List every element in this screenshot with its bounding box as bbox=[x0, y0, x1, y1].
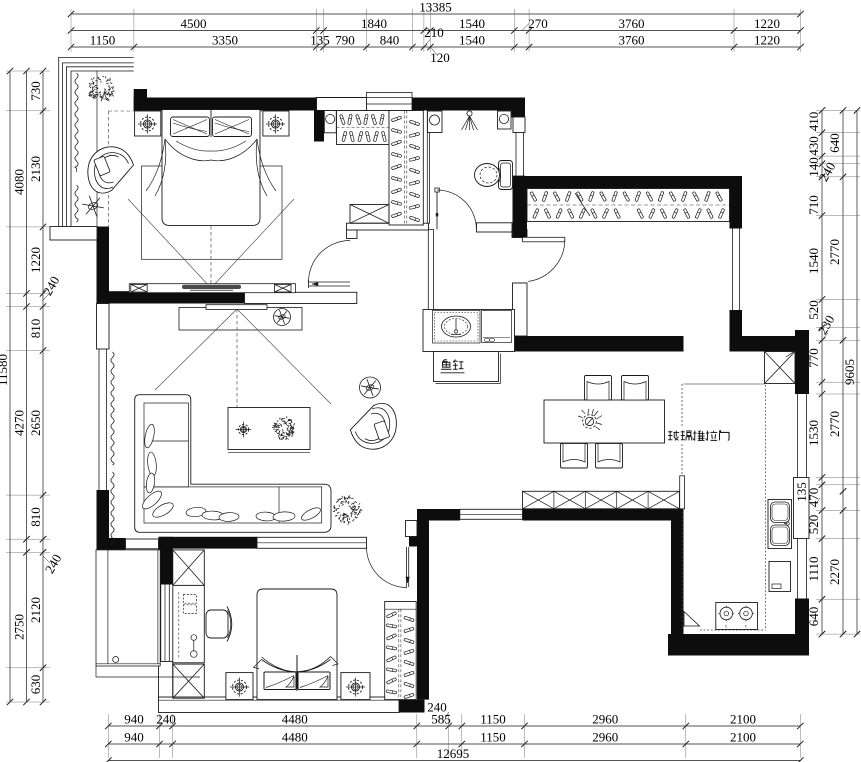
svg-text:2770: 2770 bbox=[827, 411, 842, 437]
svg-text:210: 210 bbox=[424, 25, 444, 40]
svg-text:2270: 2270 bbox=[827, 559, 842, 585]
svg-text:135: 135 bbox=[794, 482, 809, 502]
svg-text:1150: 1150 bbox=[480, 730, 506, 745]
svg-text:12695: 12695 bbox=[437, 746, 470, 761]
svg-text:840: 840 bbox=[380, 33, 400, 48]
svg-text:810: 810 bbox=[28, 319, 43, 339]
svg-text:640: 640 bbox=[806, 607, 821, 627]
svg-text:240: 240 bbox=[427, 700, 447, 715]
svg-text:1530: 1530 bbox=[806, 420, 821, 446]
svg-text:1220: 1220 bbox=[28, 247, 43, 273]
svg-text:520: 520 bbox=[806, 300, 821, 320]
svg-text:13385: 13385 bbox=[419, 0, 452, 15]
svg-text:4080: 4080 bbox=[12, 169, 27, 195]
svg-text:1150: 1150 bbox=[480, 712, 506, 727]
svg-text:710: 710 bbox=[806, 195, 821, 215]
svg-text:770: 770 bbox=[806, 348, 821, 368]
svg-text:2120: 2120 bbox=[28, 597, 43, 623]
svg-text:940: 940 bbox=[124, 712, 144, 727]
svg-text:4500: 4500 bbox=[181, 16, 207, 31]
svg-text:2770: 2770 bbox=[827, 239, 842, 265]
svg-text:640: 640 bbox=[827, 133, 842, 153]
svg-text:1840: 1840 bbox=[361, 16, 387, 31]
svg-text:520: 520 bbox=[806, 515, 821, 535]
svg-text:410: 410 bbox=[806, 112, 821, 132]
svg-text:1540: 1540 bbox=[459, 16, 485, 31]
svg-text:940: 940 bbox=[124, 730, 144, 745]
svg-text:1150: 1150 bbox=[90, 33, 116, 48]
svg-text:135: 135 bbox=[310, 33, 330, 48]
svg-text:430: 430 bbox=[806, 136, 821, 156]
svg-text:2100: 2100 bbox=[730, 730, 756, 745]
svg-text:1540: 1540 bbox=[806, 248, 821, 274]
svg-text:4270: 4270 bbox=[12, 410, 27, 436]
svg-text:1110: 1110 bbox=[806, 556, 821, 581]
svg-text:2750: 2750 bbox=[12, 614, 27, 640]
svg-text:3350: 3350 bbox=[212, 33, 238, 48]
svg-text:2100: 2100 bbox=[730, 712, 756, 727]
svg-text:270: 270 bbox=[528, 16, 548, 31]
svg-text:1220: 1220 bbox=[754, 16, 780, 31]
svg-text:120: 120 bbox=[430, 50, 450, 65]
svg-text:2960: 2960 bbox=[592, 730, 618, 745]
svg-text:630: 630 bbox=[28, 675, 43, 695]
svg-text:810: 810 bbox=[28, 507, 43, 527]
svg-text:1540: 1540 bbox=[459, 33, 485, 48]
svg-text:3760: 3760 bbox=[619, 33, 645, 48]
svg-text:4480: 4480 bbox=[282, 712, 308, 727]
svg-text:240: 240 bbox=[156, 712, 176, 727]
svg-text:1220: 1220 bbox=[754, 33, 780, 48]
svg-text:2960: 2960 bbox=[592, 712, 618, 727]
svg-text:9605: 9605 bbox=[842, 359, 857, 385]
svg-text:790: 790 bbox=[335, 33, 355, 48]
svg-text:2130: 2130 bbox=[28, 156, 43, 182]
svg-text:11580: 11580 bbox=[0, 354, 10, 386]
svg-text:730: 730 bbox=[28, 81, 43, 101]
svg-text:4480: 4480 bbox=[282, 730, 308, 745]
svg-text:2650: 2650 bbox=[28, 410, 43, 436]
svg-text:3760: 3760 bbox=[619, 16, 645, 31]
